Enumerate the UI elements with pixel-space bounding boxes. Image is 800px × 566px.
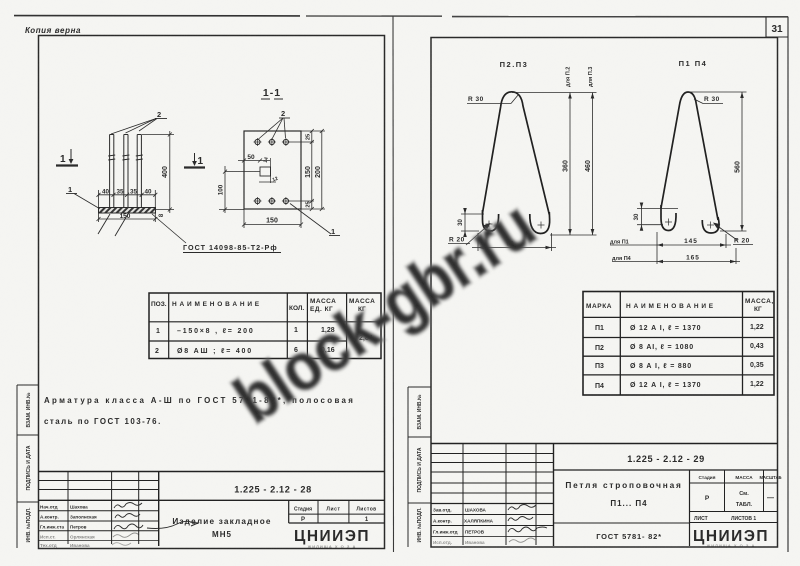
svg-text:560: 560 — [735, 161, 742, 173]
svg-text:ИНВ. №ПОДЛ.: ИНВ. №ПОДЛ. — [26, 507, 32, 543]
svg-text:П2.П3: П2.П3 — [500, 60, 529, 69]
svg-text:для П4: для П4 — [612, 256, 632, 262]
svg-text:25: 25 — [306, 134, 312, 140]
svg-text:А.контр.: А.контр. — [433, 519, 452, 524]
svg-text:200: 200 — [315, 166, 322, 178]
svg-text:ЖИЛИЩА Х О З А: ЖИЛИЩА Х О З А — [706, 543, 756, 548]
svg-text:30: 30 — [634, 213, 640, 220]
svg-text:Заполнская: Заполнская — [70, 515, 97, 520]
svg-text:ПЕТРОВ: ПЕТРОВ — [465, 530, 485, 535]
svg-text:Нач.отд: Нач.отд — [40, 505, 58, 510]
svg-text:1,22: 1,22 — [750, 381, 764, 388]
svg-text:Ø8 АШ ; ℓ= 400: Ø8 АШ ; ℓ= 400 — [177, 348, 253, 355]
svg-text:1: 1 — [198, 156, 204, 167]
svg-text:МАССА,: МАССА, — [745, 298, 774, 305]
svg-text:Гл.инж.ста: Гл.инж.ста — [40, 525, 65, 530]
svg-text:Ø 12 А I, ℓ = 1370: Ø 12 А I, ℓ = 1370 — [630, 382, 701, 389]
svg-text:Стадия: Стадия — [699, 475, 716, 480]
svg-text:ВЗАМ. ИНВ.№: ВЗАМ. ИНВ.№ — [417, 394, 423, 429]
svg-text:150: 150 — [305, 166, 312, 178]
svg-text:Изделие закладное: Изделие закладное — [172, 517, 271, 526]
svg-text:П1: П1 — [595, 325, 604, 332]
svg-text:1.225 - 2.12 - 28: 1.225 - 2.12 - 28 — [234, 485, 312, 495]
svg-text:ТАБЛ.: ТАБЛ. — [736, 502, 753, 508]
svg-text:Ø 8 АI, ℓ = 1080: Ø 8 АI, ℓ = 1080 — [630, 344, 694, 351]
svg-text:ХАЛЯПКИНА: ХАЛЯПКИНА — [464, 519, 494, 524]
svg-text:сталь по ГОСТ 103-76.: сталь по ГОСТ 103-76. — [44, 417, 162, 426]
svg-text:Копия верна: Копия верна — [25, 26, 81, 35]
svg-text:ИНВ. №ПОДЛ.: ИНВ. №ПОДЛ. — [417, 507, 423, 543]
svg-text:12: 12 — [272, 176, 279, 184]
svg-text:Иванова: Иванова — [465, 540, 485, 545]
svg-text:R 30: R 30 — [468, 96, 484, 103]
svg-text:ШАХОВА: ШАХОВА — [465, 508, 487, 513]
svg-text:1: 1 — [68, 185, 72, 194]
svg-text:—: — — [767, 495, 774, 502]
svg-text:П3: П3 — [595, 363, 604, 370]
svg-text:2: 2 — [281, 109, 285, 118]
svg-text:0,35: 0,35 — [750, 362, 764, 369]
svg-text:31: 31 — [771, 24, 783, 35]
svg-text:Р: Р — [705, 495, 710, 502]
svg-text:100: 100 — [218, 184, 225, 195]
svg-text:Исп.отд.: Исп.отд. — [433, 540, 452, 545]
svg-text:14: 14 — [263, 156, 270, 163]
svg-text:Ø 12 А I, ℓ = 1370: Ø 12 А I, ℓ = 1370 — [630, 325, 701, 332]
svg-text:Лист: Лист — [326, 507, 340, 513]
svg-text:ПОДПИСЬ И ДАТА: ПОДПИСЬ И ДАТА — [417, 447, 423, 492]
svg-text:для П.2: для П.2 — [566, 67, 572, 87]
svg-text:8: 8 — [159, 213, 165, 217]
svg-text:0,43: 0,43 — [750, 343, 764, 350]
svg-text:МАРКА: МАРКА — [586, 303, 612, 310]
svg-text:150: 150 — [266, 218, 278, 225]
svg-text:НАИМЕНОВАНИЕ: НАИМЕНОВАНИЕ — [626, 303, 716, 310]
svg-text:Гл.инж.отд: Гл.инж.отд — [433, 530, 458, 535]
svg-text:Стадия: Стадия — [294, 507, 312, 513]
svg-text:1.225 - 2.12 - 29: 1.225 - 2.12 - 29 — [627, 454, 705, 464]
svg-text:360: 360 — [563, 160, 570, 172]
svg-text:ПОЗ.: ПОЗ. — [151, 301, 167, 308]
svg-text:35: 35 — [130, 189, 138, 196]
svg-text:R 30: R 30 — [704, 96, 720, 103]
svg-text:1: 1 — [156, 328, 160, 335]
svg-text:ЛИСТ: ЛИСТ — [694, 516, 708, 522]
svg-text:П1... П4: П1... П4 — [610, 499, 647, 508]
svg-text:П4: П4 — [595, 383, 604, 390]
svg-text:40: 40 — [102, 189, 110, 196]
svg-text:R 20: R 20 — [734, 238, 750, 245]
svg-text:П1 П4: П1 П4 — [679, 59, 708, 68]
svg-text:См.: См. — [739, 491, 749, 497]
svg-text:Ø 8 А I, ℓ = 880: Ø 8 А I, ℓ = 880 — [630, 363, 692, 370]
svg-text:2: 2 — [157, 110, 161, 119]
svg-text:1-1: 1-1 — [263, 87, 281, 99]
svg-text:Зав.отд.: Зав.отд. — [433, 508, 452, 513]
svg-text:ВЗАМ. ИНВ.№: ВЗАМ. ИНВ.№ — [26, 392, 32, 427]
svg-text:1: 1 — [365, 517, 369, 523]
svg-text:400: 400 — [162, 166, 169, 178]
svg-text:для П.3: для П.3 — [588, 67, 594, 87]
svg-text:ЛИСТОВ 1: ЛИСТОВ 1 — [731, 516, 756, 522]
svg-text:Шахова: Шахова — [70, 505, 88, 510]
svg-text:2: 2 — [155, 348, 159, 355]
svg-text:25: 25 — [306, 201, 312, 207]
svg-text:1: 1 — [60, 154, 66, 165]
svg-text:1,22: 1,22 — [750, 324, 764, 331]
svg-text:МАССА: МАССА — [735, 475, 753, 480]
svg-text:ЦНИИЭП: ЦНИИЭП — [294, 528, 370, 545]
svg-text:165: 165 — [686, 255, 700, 262]
svg-text:460: 460 — [585, 160, 592, 172]
svg-text:1: 1 — [331, 227, 335, 236]
svg-text:Петров: Петров — [70, 525, 87, 530]
svg-text:Тех.отд: Тех.отд — [40, 543, 57, 548]
svg-text:КГ: КГ — [754, 306, 762, 313]
svg-text:Р: Р — [301, 517, 305, 523]
svg-text:А.контр.: А.контр. — [40, 515, 59, 520]
svg-text:40: 40 — [144, 189, 152, 196]
svg-text:МН5: МН5 — [212, 530, 232, 539]
svg-text:Иванова: Иванова — [70, 543, 90, 548]
svg-text:ЖИЛИЩА Х О З А: ЖИЛИЩА Х О З А — [307, 544, 357, 549]
svg-text:50: 50 — [247, 154, 255, 161]
svg-text:Орлянская: Орлянская — [70, 534, 95, 539]
svg-text:для П1: для П1 — [610, 240, 629, 246]
svg-text:Петля строповочная: Петля строповочная — [565, 480, 682, 490]
svg-text:ГОСТ 14098-85-Т2-Рф: ГОСТ 14098-85-Т2-Рф — [183, 243, 278, 252]
svg-text:П2: П2 — [595, 345, 604, 352]
svg-text:НАИМЕНОВАНИЕ: НАИМЕНОВАНИЕ — [172, 301, 262, 308]
svg-text:35: 35 — [116, 189, 124, 196]
svg-text:Исп.ст.: Исп.ст. — [40, 534, 56, 539]
svg-text:–150×8 , ℓ= 200: –150×8 , ℓ= 200 — [177, 328, 255, 335]
svg-text:ПОДПИСЬ И ДАТА: ПОДПИСЬ И ДАТА — [26, 445, 32, 490]
svg-text:МАСШТАБ: МАСШТАБ — [760, 475, 782, 480]
svg-text:ГОСТ 5781- 82*: ГОСТ 5781- 82* — [596, 532, 662, 541]
svg-text:КОЛ.: КОЛ. — [289, 305, 304, 312]
svg-text:145: 145 — [684, 238, 698, 245]
svg-text:Листов: Листов — [356, 507, 376, 513]
